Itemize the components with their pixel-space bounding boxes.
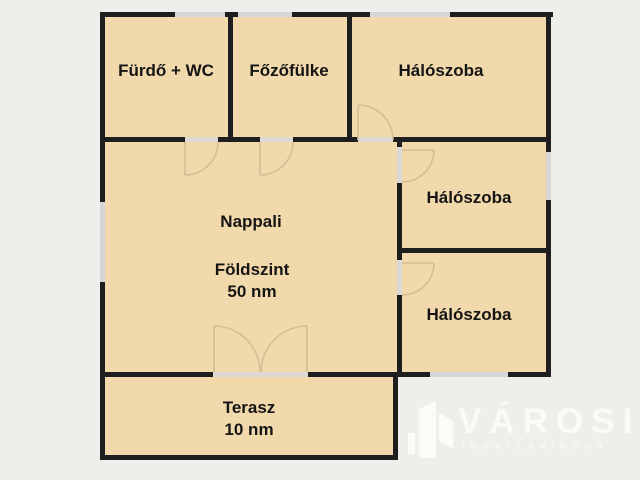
varosi-logo-wing-icon	[439, 413, 453, 449]
label-nappali: Nappali	[220, 211, 281, 233]
label-floor: Földszint	[215, 259, 290, 281]
label-terasz: Terasz 10 nm	[223, 397, 276, 441]
wall-terasz-bottom	[100, 455, 398, 460]
window-haloszoba-middle	[546, 152, 551, 200]
door-gap-haloszoba-middle	[397, 147, 402, 183]
door-gap-haloszoba-bottom	[397, 260, 402, 295]
label-floor-area: 50 nm	[215, 281, 290, 303]
wall-furdo-fozofulke	[228, 12, 233, 142]
label-fozofulke: Főzőfülke	[249, 60, 328, 82]
label-terasz-name: Terasz	[223, 397, 276, 419]
door-gap-terasz	[213, 372, 308, 377]
label-haloszoba-top: Hálószoba	[398, 60, 483, 82]
window-nappali-left	[100, 202, 105, 282]
door-gap-furdo	[185, 137, 218, 142]
watermark-brand-name: VÁROSI	[458, 402, 640, 442]
varosi-logo-tower-icon	[419, 401, 436, 458]
window-fozofulke	[238, 12, 292, 17]
wall-bedroom-divider	[397, 248, 551, 253]
window-furdo	[175, 12, 225, 17]
watermark-subtitle: INGATLANIRODA	[462, 441, 608, 451]
wall-top	[100, 12, 553, 17]
label-terasz-area: 10 nm	[223, 419, 276, 441]
window-haloszoba-top	[370, 12, 450, 17]
label-foldszint: Földszint 50 nm	[215, 259, 290, 303]
wall-top-row-bottom	[100, 137, 551, 142]
varosi-logo-buildings-icon	[408, 433, 415, 454]
floor-plan: Fürdő + WC Főzőfülke Hálószoba Hálószoba…	[0, 0, 640, 480]
door-gap-fozofulke	[260, 137, 293, 142]
label-haloszoba-bottom: Hálószoba	[426, 304, 511, 326]
door-gap-haloszoba-top	[358, 137, 393, 142]
window-haloszoba-bottom	[430, 372, 508, 377]
label-haloszoba-middle: Hálószoba	[426, 187, 511, 209]
wall-fozofulke-haloszoba	[347, 12, 352, 142]
wall-terasz-right	[393, 377, 398, 460]
room-nappali	[103, 140, 399, 374]
label-furdo-wc: Fürdő + WC	[118, 60, 214, 82]
